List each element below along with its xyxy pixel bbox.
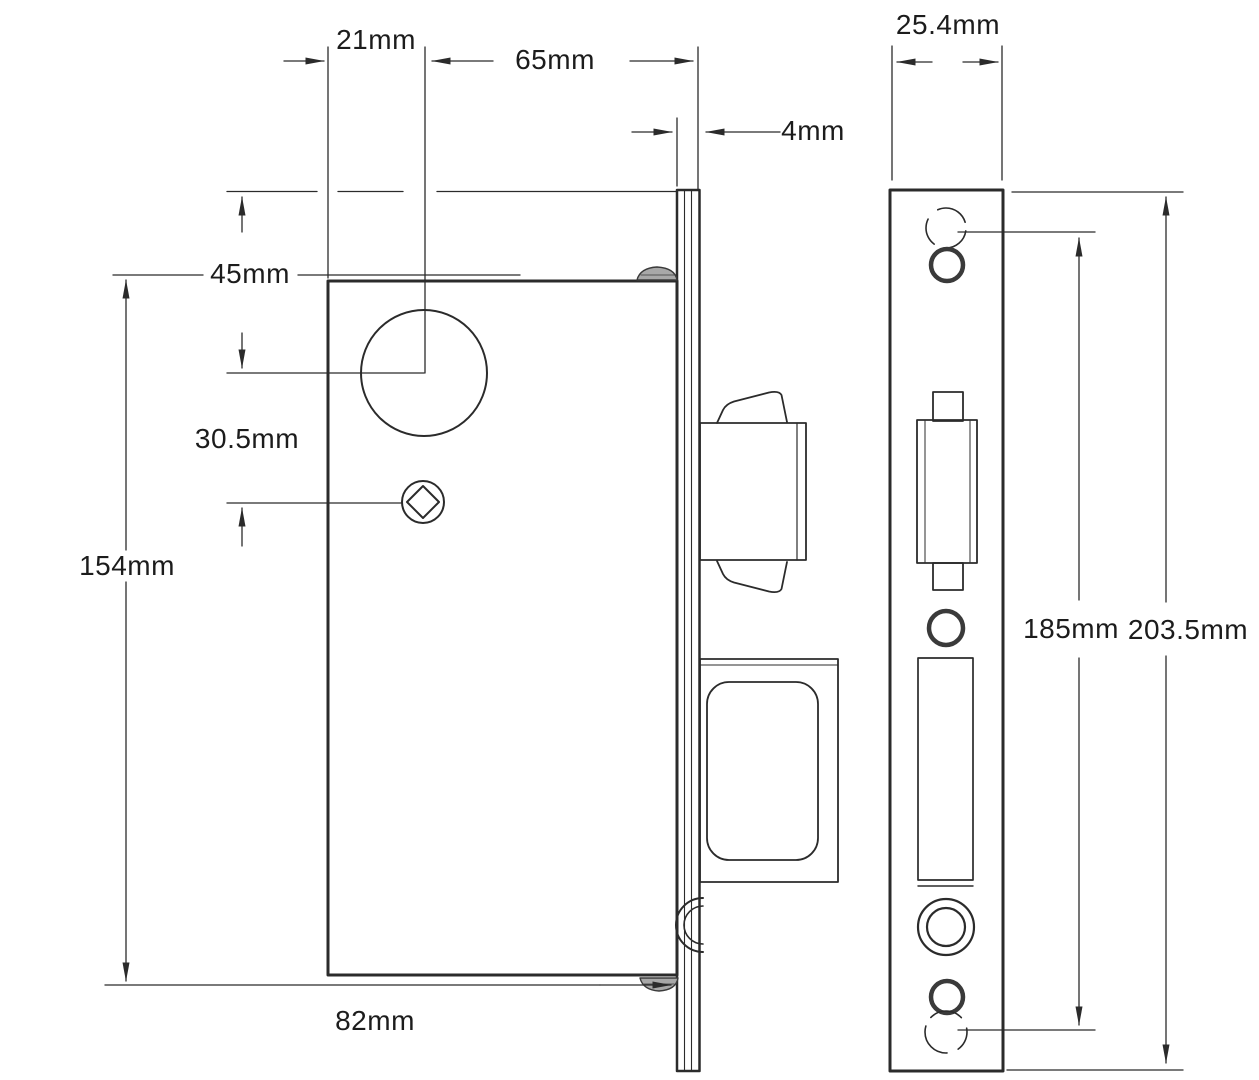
dim-cylinder-offset-label: 21mm <box>336 26 416 54</box>
dim-faceplate-width-label: 25.4mm <box>896 11 1000 39</box>
fixing-hole-bottom <box>931 981 963 1013</box>
lock-case-side-view <box>328 281 677 975</box>
dim-top-to-cylinder-label: 45mm <box>210 260 290 288</box>
spindle-hole <box>402 481 444 523</box>
dim-fixing-centres-label: 185mm <box>1023 615 1119 643</box>
dim-cylinder-to-spindle-label: 30.5mm <box>195 425 299 453</box>
cylinder-collar-front <box>918 899 974 955</box>
deadbolt-side <box>700 659 838 882</box>
screw-hole-top <box>926 208 966 248</box>
screw-hole-bottom <box>925 1011 967 1053</box>
dim-case-depth-label: 82mm <box>335 1007 415 1035</box>
faceplate-side-view <box>637 190 703 1071</box>
dim-case-height-label: 154mm <box>79 552 175 580</box>
faceplate-front-outline <box>890 190 1003 1071</box>
dim-faceplate-thickness-label: 4mm <box>781 117 845 145</box>
latch-bolt-side <box>700 392 806 592</box>
technical-drawing-page: 21mm 65mm 4mm 25.4mm 45mm 30.5mm 154mm 8… <box>0 0 1259 1080</box>
dim-backset-label: 65mm <box>515 46 595 74</box>
lock-case-outline <box>328 281 677 975</box>
dimension-lines <box>105 46 1183 1070</box>
deadbolt-cutout-front <box>918 658 973 886</box>
rivet-boss-top <box>637 267 677 280</box>
faceplate-front-view <box>890 190 1003 1071</box>
latch-bevel-top <box>717 392 787 423</box>
latch-bevel-bottom <box>717 561 787 592</box>
fixing-hole-top <box>931 249 963 281</box>
technical-drawing-canvas <box>0 0 1259 1080</box>
dim-faceplate-height-label: 203.5mm <box>1128 616 1248 644</box>
latch-cutout-front <box>917 392 977 590</box>
fixing-hole-middle <box>929 611 963 645</box>
